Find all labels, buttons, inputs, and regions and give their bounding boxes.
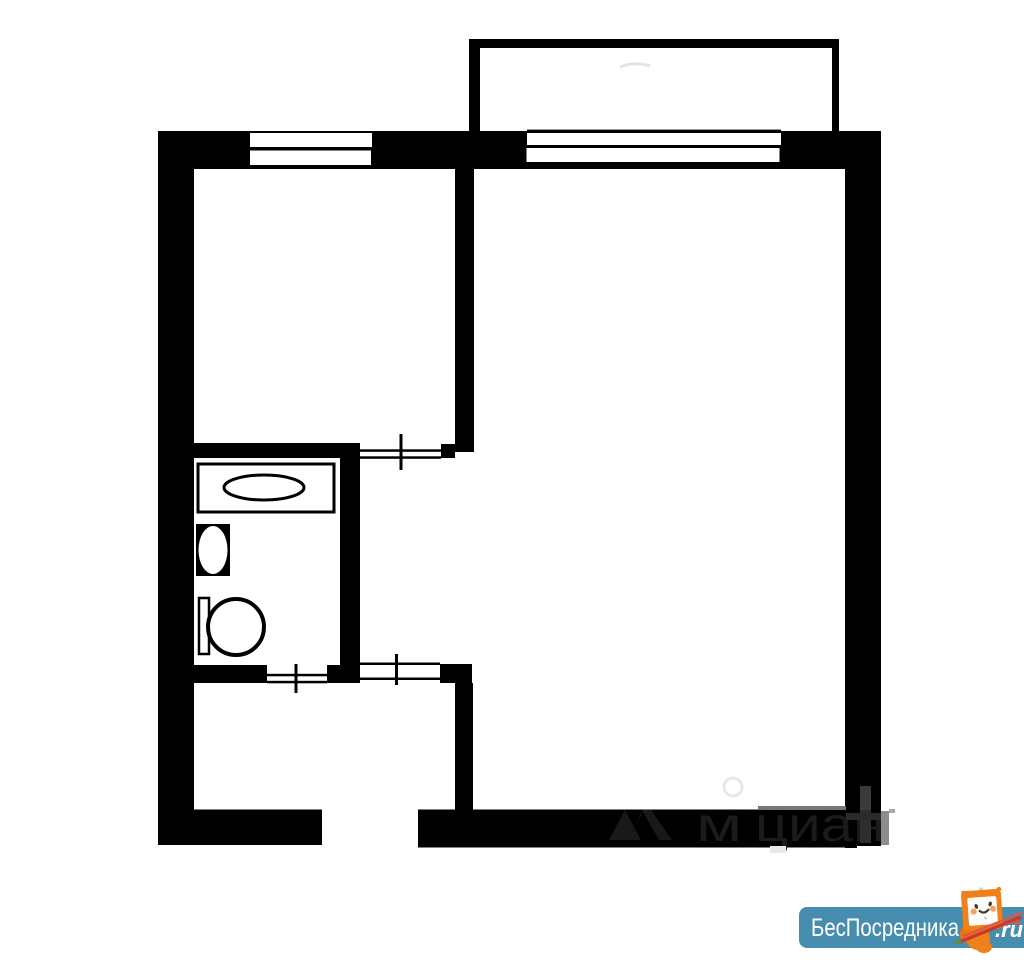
svg-text:м: м [696,799,742,852]
svg-text:БесПосредника: БесПосредника [811,914,959,942]
